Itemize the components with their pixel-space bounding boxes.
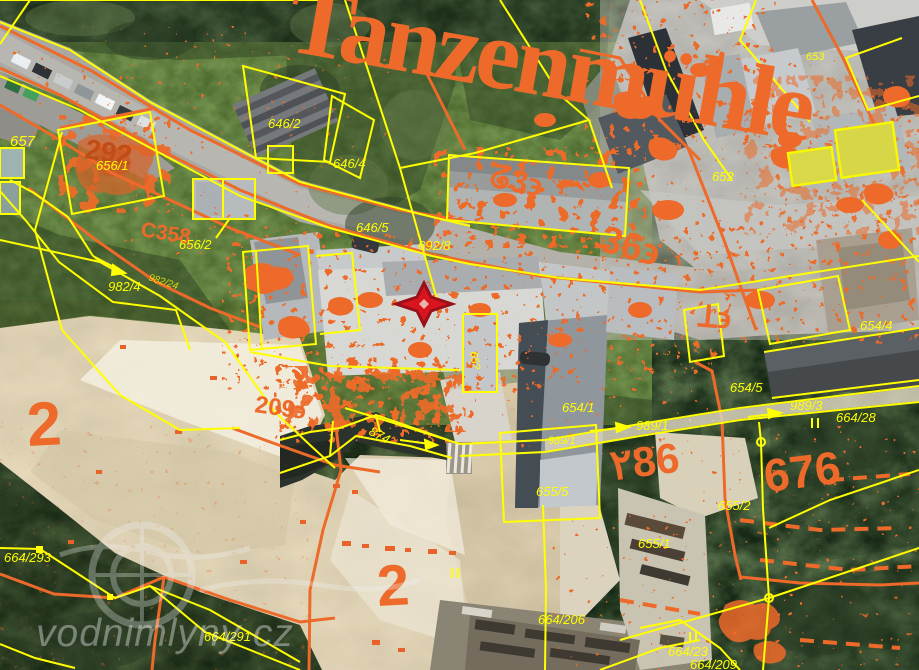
svg-text:646/2: 646/2 <box>268 116 301 131</box>
svg-text:655/2: 655/2 <box>718 498 751 513</box>
svg-text:ꓕ϶: ꓕ϶ <box>696 300 732 336</box>
svg-text:653: 653 <box>806 51 825 63</box>
svg-text:676: 676 <box>761 441 844 502</box>
svg-text:646/4: 646/4 <box>333 156 366 171</box>
svg-text:654/1: 654/1 <box>562 400 595 415</box>
svg-text:989/1: 989/1 <box>548 435 576 447</box>
svg-text:656/1: 656/1 <box>96 158 129 173</box>
svg-text:2: 2 <box>25 389 63 460</box>
svg-text:652: 652 <box>712 169 734 184</box>
svg-text:692/8: 692/8 <box>418 238 451 253</box>
svg-text:655/1: 655/1 <box>638 536 671 551</box>
svg-text:657: 657 <box>10 133 36 150</box>
svg-text:664/209: 664/209 <box>690 657 737 670</box>
svg-text:664/28: 664/28 <box>836 410 877 425</box>
svg-text:989/3: 989/3 <box>790 398 823 413</box>
svg-text:982/4: 982/4 <box>108 279 141 294</box>
svg-text:٢86: ٢86 <box>607 434 681 489</box>
svg-text:664/206: 664/206 <box>538 612 586 627</box>
svg-text:654/4: 654/4 <box>860 318 893 333</box>
svg-text:656/2: 656/2 <box>179 237 212 252</box>
svg-text:989/1: 989/1 <box>636 418 669 433</box>
svg-text:646/5: 646/5 <box>356 220 389 235</box>
svg-text:vodnimlyny cz: vodnimlyny cz <box>36 612 294 655</box>
svg-text:664/293: 664/293 <box>4 550 52 565</box>
svg-text:655/5: 655/5 <box>536 484 569 499</box>
svg-text:654/5: 654/5 <box>730 380 763 395</box>
